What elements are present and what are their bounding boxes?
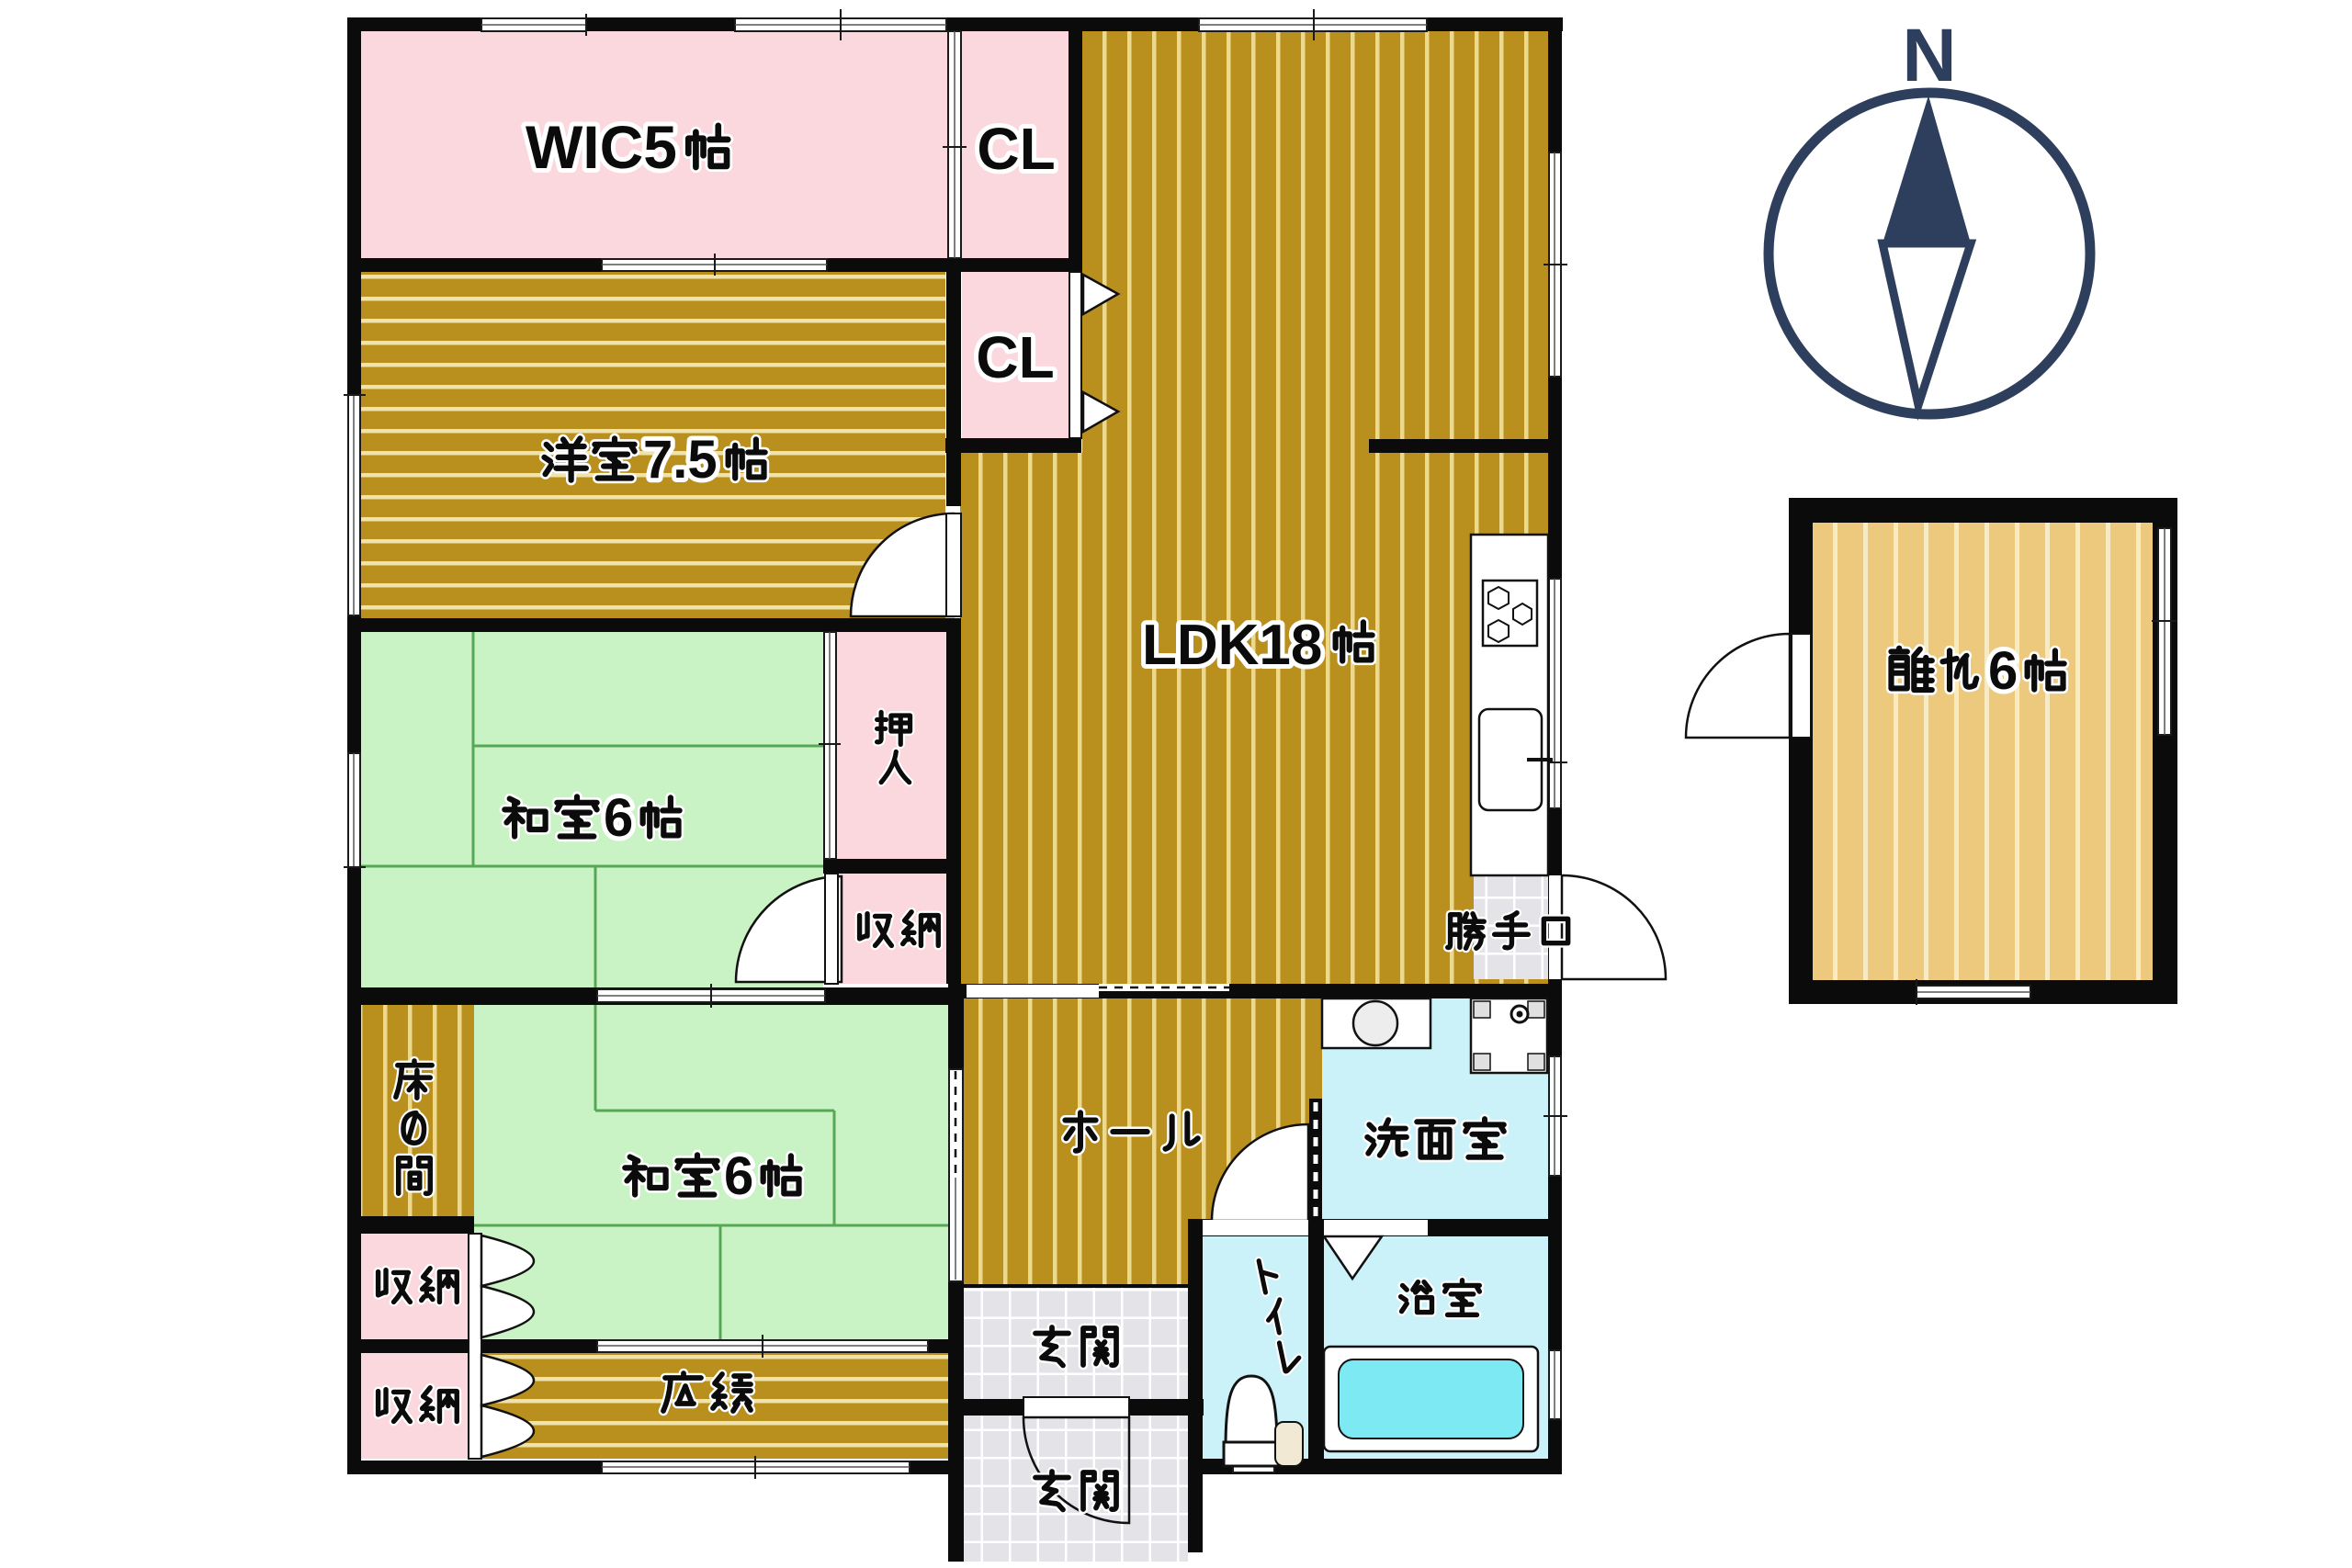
svg-text:6: 6 [1988,641,2018,701]
svg-text:6: 6 [724,1146,753,1206]
svg-text:WIC5: WIC5 [526,113,677,181]
svg-text:N: N [1902,14,1956,97]
svg-text:6: 6 [604,788,633,848]
svg-text:LDK18: LDK18 [1142,614,1322,677]
svg-text:CL: CL [977,116,1055,182]
svg-text:7.5: 7.5 [643,430,718,490]
svg-text:CL: CL [976,324,1054,390]
